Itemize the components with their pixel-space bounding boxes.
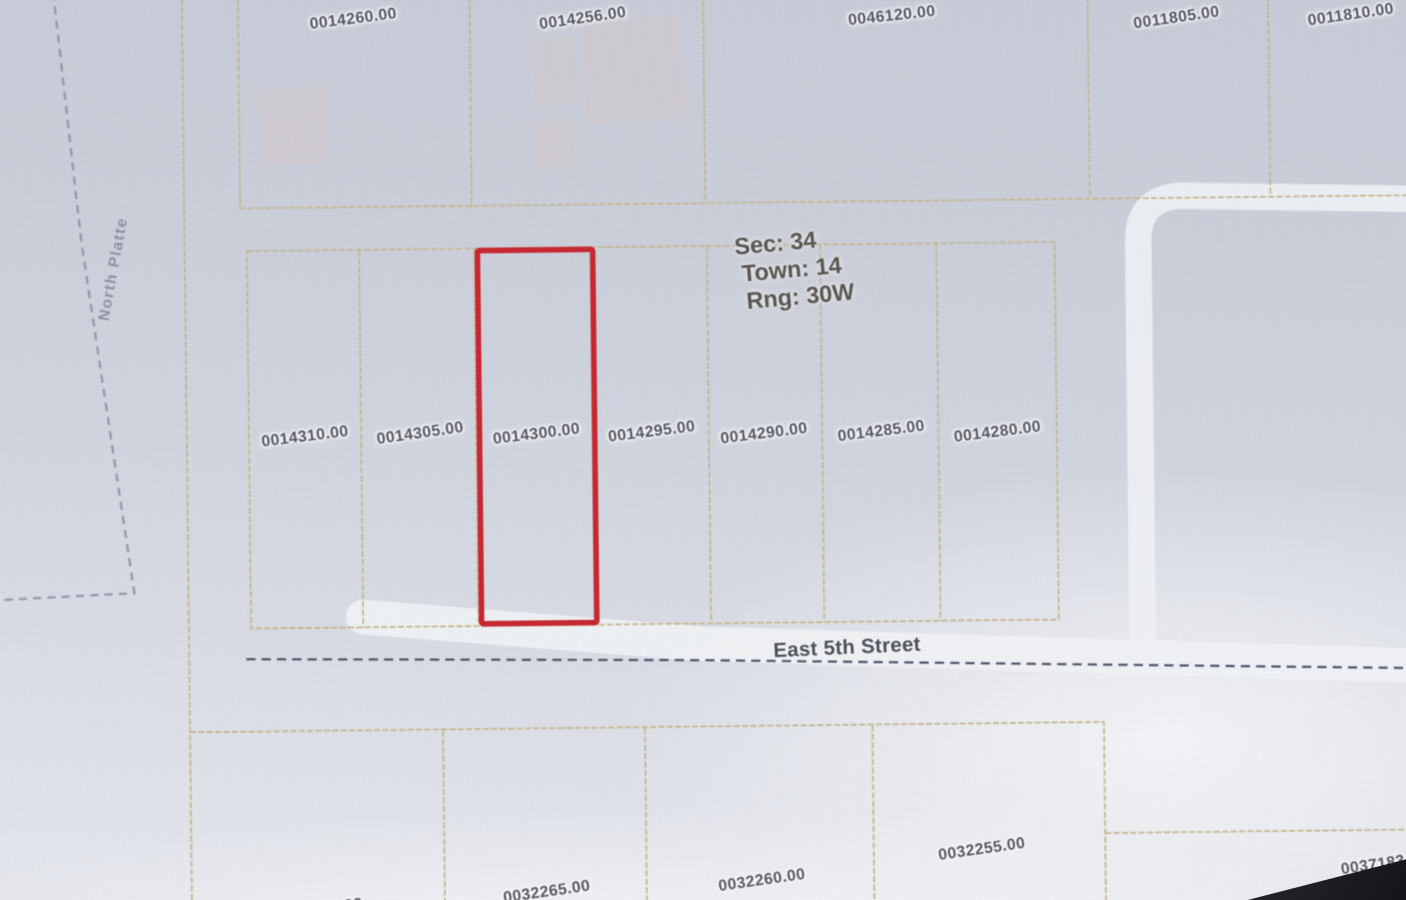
- side-road-band: [1138, 193, 1406, 649]
- bottom-block-divider: [443, 730, 445, 900]
- bottom-block-divider: [645, 728, 647, 900]
- top-block-boundary: [238, 0, 1406, 208]
- parcel-line-west: [182, 0, 193, 900]
- top-block-divider: [469, 0, 471, 208]
- parcel-boundaries-group: [182, 0, 1406, 900]
- plss-annotation: Sec: 34 Town: 14 Rng: 30W: [733, 223, 855, 316]
- gis-map-viewport: 0014260.00 0014256.00 0046120.00 0011805…: [0, 0, 1406, 900]
- middle-block-divider: [707, 246, 711, 623]
- middle-block-divider: [359, 250, 363, 627]
- map-rotation-wrapper: 0014260.00 0014256.00 0046120.00 0011805…: [0, 0, 1406, 900]
- bottom-block-boundary: [190, 722, 1106, 900]
- bottom-block-divider: [872, 726, 874, 900]
- middle-block-divider: [936, 243, 940, 620]
- top-block-divider: [1087, 0, 1089, 198]
- parcel-map-canvas[interactable]: 0014260.00 0014256.00 0046120.00 0011805…: [0, 0, 1406, 900]
- top-block-divider: [1268, 0, 1270, 196]
- map-lines-layer: [0, 0, 1406, 900]
- top-block-divider: [703, 0, 705, 203]
- bottom-block-boundary-east: [1105, 829, 1406, 833]
